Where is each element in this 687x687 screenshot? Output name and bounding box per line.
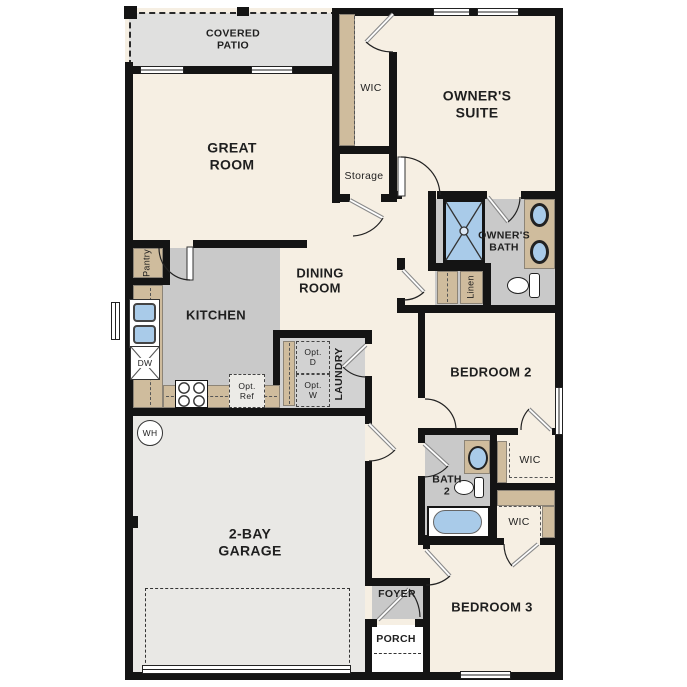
bath2-toilet-tank (474, 477, 484, 498)
porch-step-dashed-line (374, 653, 421, 654)
linen-label: Linen (466, 275, 477, 299)
owners-bath-toilet-tank (529, 273, 540, 298)
patio-dashed-edge-top (129, 12, 337, 14)
owners-bath-label: OWNER'S BATH (475, 230, 533, 255)
water-heater-label: WH (143, 428, 158, 438)
dishwasher-label: DW (137, 358, 154, 368)
great-room-window (140, 66, 184, 74)
wall (125, 408, 372, 416)
owner-wic-shelf (339, 14, 355, 146)
opt-dryer-label: Opt. D (301, 347, 325, 367)
bedroom2-wic-shelf (497, 441, 507, 483)
garage-door (142, 665, 351, 674)
owners-suite-window (433, 8, 470, 16)
covered-patio-label: COVERED PATIO (193, 28, 273, 53)
wall (521, 191, 563, 199)
bedroom3-label: BEDROOM 3 (451, 599, 532, 614)
wall (418, 476, 425, 538)
wall (418, 538, 504, 545)
wall (332, 194, 350, 202)
wall (555, 8, 563, 680)
kitchen-sink-basin (133, 303, 156, 322)
foyer-label: FOYER (378, 588, 416, 600)
patio-dashed-edge-left (129, 13, 131, 66)
wall (125, 516, 138, 528)
porch-label: PORCH (376, 633, 415, 645)
wic-shelf-line (509, 443, 510, 478)
wall (418, 428, 518, 435)
stove (175, 380, 208, 408)
wall (365, 619, 372, 677)
wall (365, 578, 430, 586)
wall (365, 461, 372, 580)
dining-room-label: DINING ROOM (290, 266, 350, 297)
patio-post (124, 6, 137, 19)
opt-washer-label: Opt. W (301, 380, 325, 400)
bath2-label: BATH 2 (429, 474, 465, 499)
bedroom3-window (460, 671, 511, 679)
owners-bath-toilet-bowl (507, 277, 529, 294)
owner-wic-label: WIC (360, 82, 381, 94)
bedroom2-window (555, 387, 563, 435)
wall (428, 191, 436, 271)
bedroom3-wic-label: WIC (508, 516, 529, 528)
wall (397, 258, 405, 270)
owners-suite-label: OWNER'S SUITE (437, 87, 517, 120)
great-room-label: GREAT ROOM (202, 139, 262, 172)
wall (365, 376, 372, 416)
wic-shelf-line (509, 477, 553, 478)
storage-label: Storage (345, 170, 384, 182)
bedroom3-wic-shelf (497, 490, 555, 506)
wall (395, 191, 402, 199)
garage-label: 2-BAY GARAGE (216, 525, 284, 558)
garage-door-dashed-outline (145, 588, 350, 668)
bedroom3-wic-shelf (542, 506, 555, 538)
floor-plan: COVERED PATIO GREAT ROOM WIC Storage OWN… (0, 0, 687, 687)
owners-suite-window (477, 8, 519, 16)
pantry-label: Pantry (142, 249, 153, 277)
wall (428, 263, 490, 271)
wall (193, 240, 307, 248)
wall (365, 330, 372, 344)
owners-bath-sink (530, 203, 549, 227)
wall (389, 52, 397, 152)
wall (365, 416, 372, 424)
wall (125, 278, 170, 285)
patio-post (237, 7, 249, 16)
wall (397, 305, 563, 313)
wall (483, 263, 491, 305)
bedroom2-label: BEDROOM 2 (450, 364, 531, 379)
wall (273, 330, 372, 338)
kitchen-label: KITCHEN (186, 307, 246, 322)
owner-wic-shelf-line (354, 16, 355, 144)
wall (490, 435, 497, 538)
bedroom2-wic-label: WIC (519, 454, 540, 466)
wall (423, 586, 430, 680)
wall (332, 146, 397, 154)
wall (437, 191, 487, 199)
laundry-label: LAUNDRY (333, 347, 345, 400)
opt-refrigerator-label: Opt. Ref (234, 381, 260, 401)
bath2-sink (468, 446, 488, 470)
kitchen-window (111, 302, 120, 340)
kitchen-sink-basin (133, 325, 156, 344)
wall (540, 538, 563, 545)
linen-shelf-line (447, 273, 448, 302)
bathtub-basin (433, 510, 482, 534)
wall (397, 298, 405, 313)
great-room-window (251, 66, 293, 74)
wall (497, 483, 563, 490)
wall (418, 313, 425, 398)
laundry-shelf-line (289, 343, 290, 404)
